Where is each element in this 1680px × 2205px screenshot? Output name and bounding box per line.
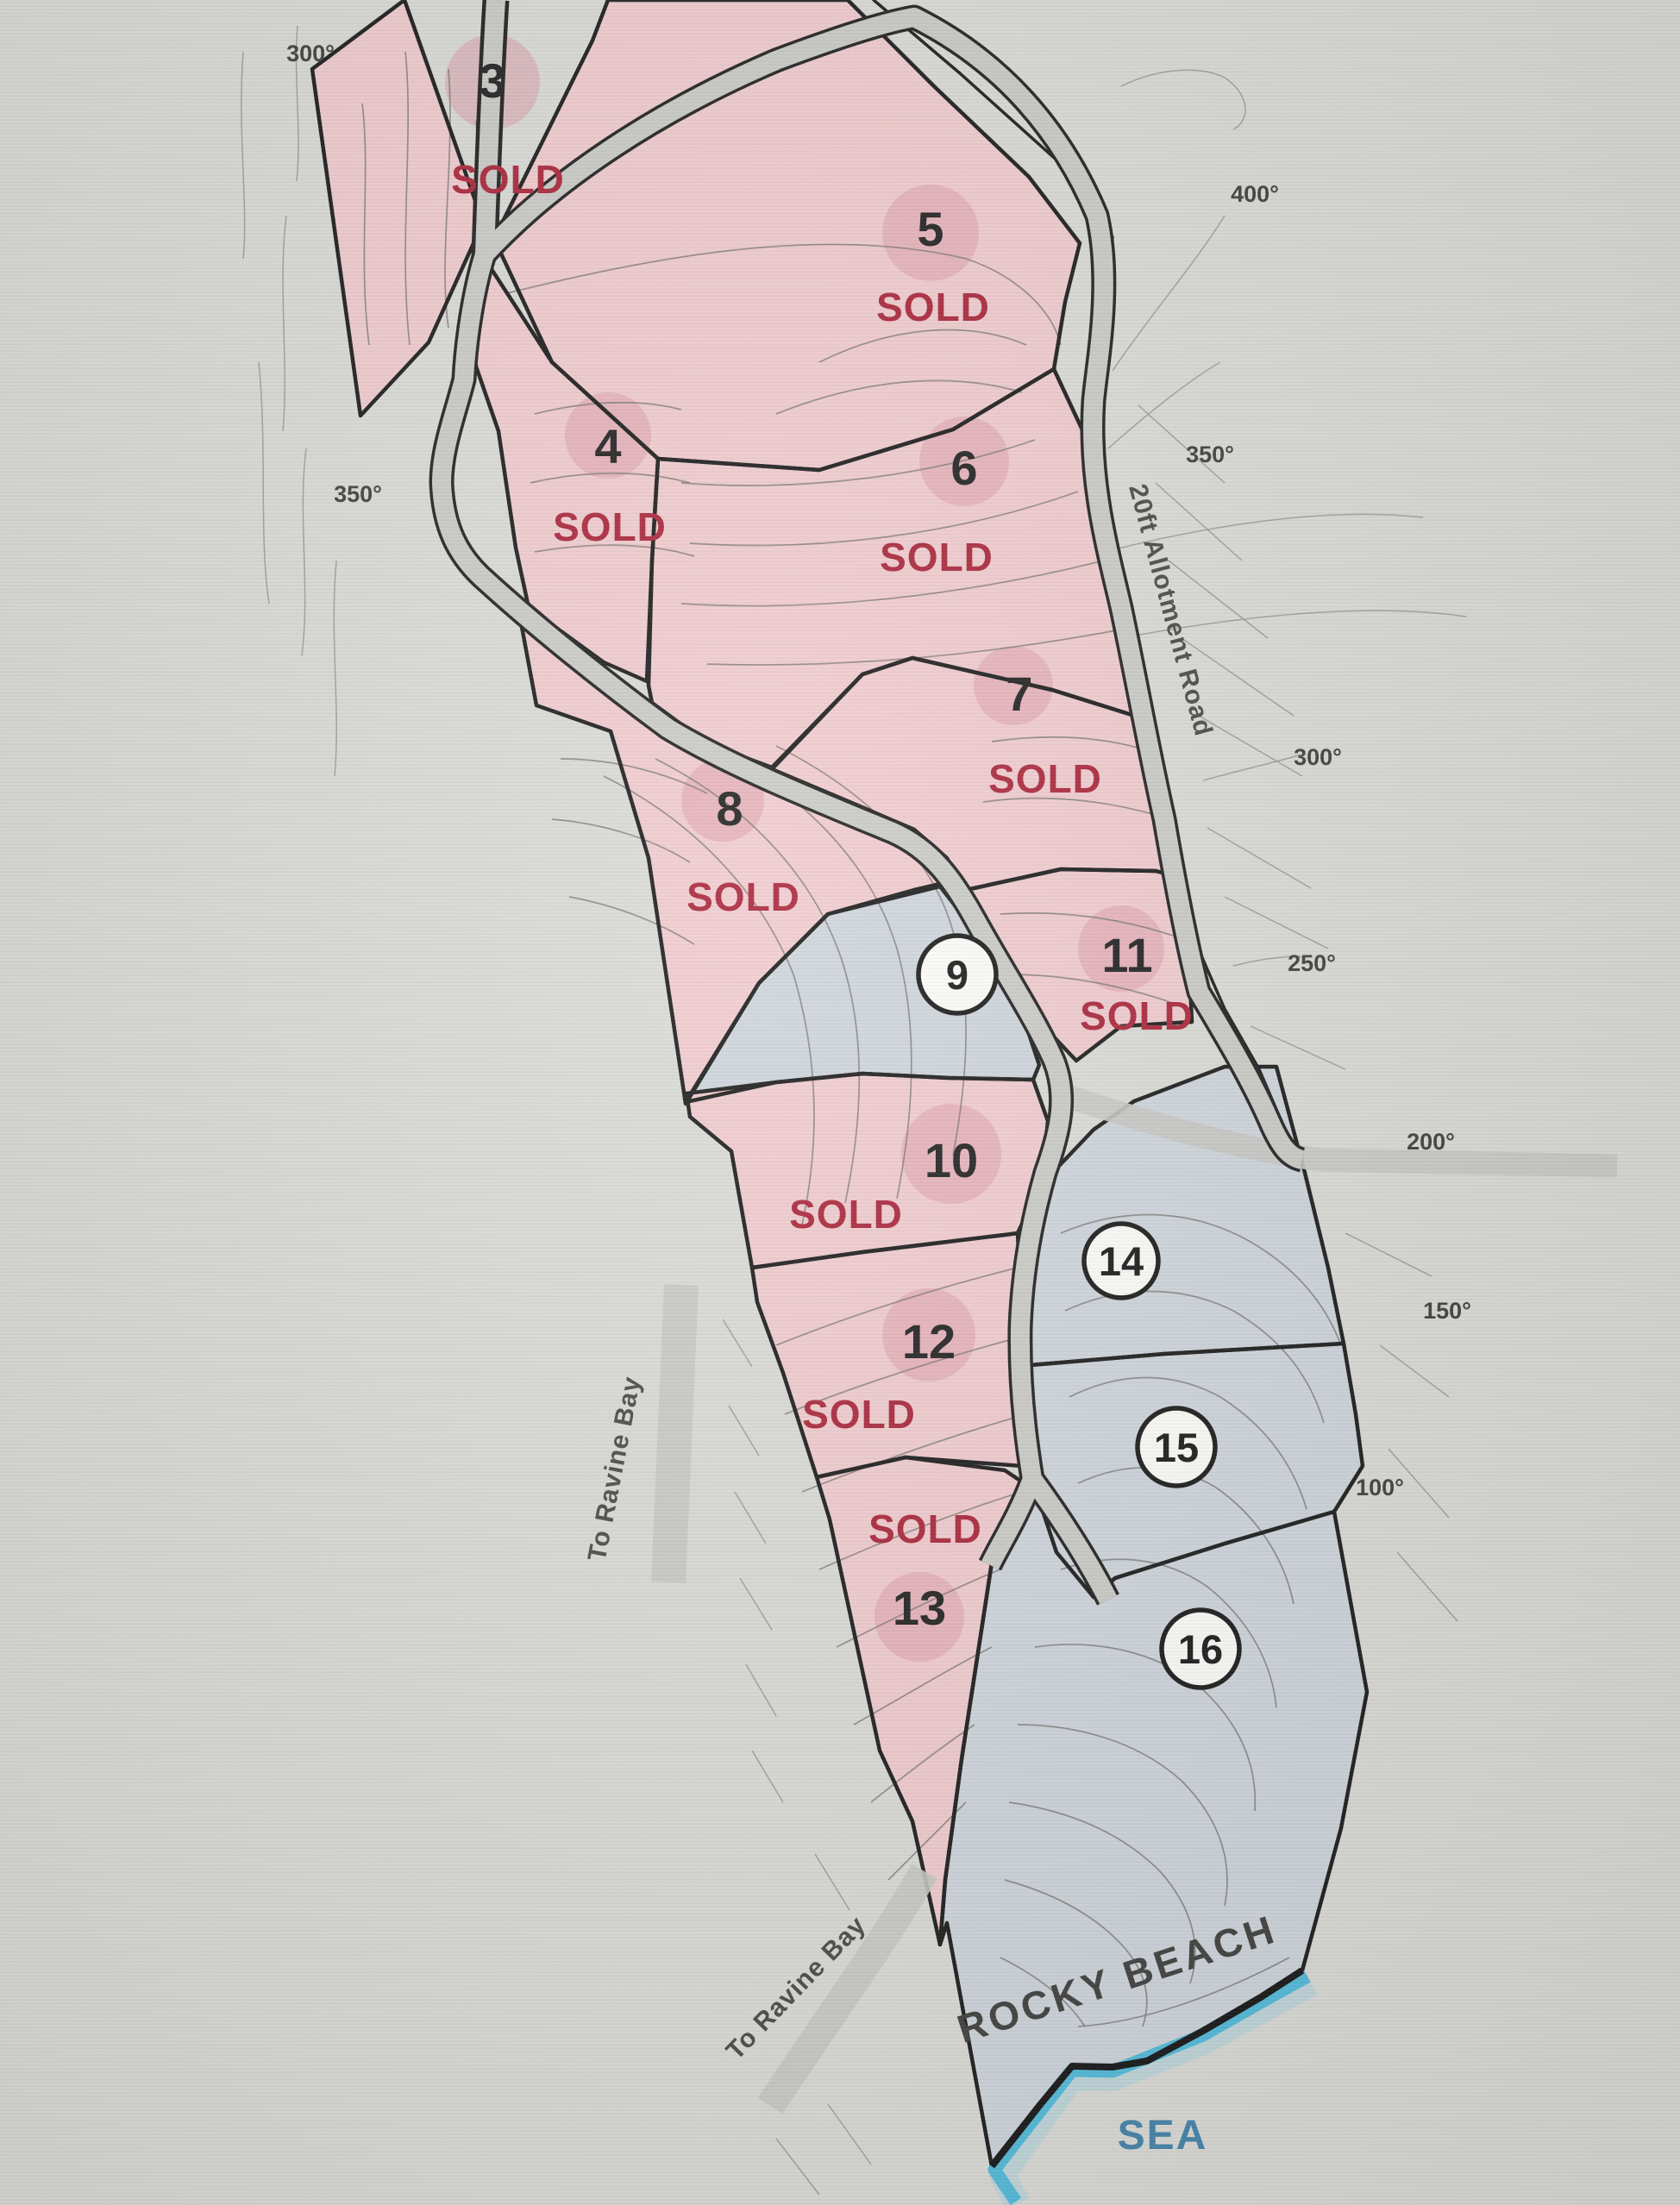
plot-12-number: 12: [902, 1314, 956, 1369]
elevation-400-right: 400°: [1231, 181, 1279, 207]
plot-6-number: 6: [950, 441, 977, 495]
plot-8-number: 8: [716, 781, 743, 836]
plot-16-number: 16: [1178, 1626, 1223, 1672]
elevation-250-right: 250°: [1288, 950, 1336, 976]
elevation-300-right: 300°: [1294, 744, 1342, 770]
plot-3-number: 3: [479, 53, 505, 108]
plot-4-sold-label: SOLD: [553, 504, 667, 549]
elevation-350-right: 350°: [1186, 442, 1234, 467]
plot-13-number: 13: [893, 1581, 946, 1635]
plot-8-sold-label: SOLD: [686, 874, 800, 919]
plot-7-number: 7: [1006, 667, 1032, 721]
plot-10-number: 10: [925, 1133, 978, 1187]
elevation-300-topleft: 300°: [286, 41, 335, 66]
plot-6-sold-label: SOLD: [880, 535, 994, 579]
elevation-150-right: 150°: [1423, 1298, 1471, 1324]
elevation-200-right: 200°: [1407, 1129, 1455, 1155]
sea-label: SEA: [1118, 2113, 1208, 2158]
plot-15-number: 15: [1154, 1425, 1199, 1470]
plot-9-number: 9: [946, 952, 969, 998]
plot-5-sold-label: SOLD: [876, 285, 990, 329]
plot-7-sold-label: SOLD: [988, 756, 1102, 801]
road-to-ravine-bay-left: [668, 1285, 681, 1582]
plot-10-sold-label: SOLD: [789, 1192, 903, 1237]
plot-12-sold-label: SOLD: [802, 1392, 916, 1437]
allotment-map: 9 14 15 16 3 4 5 6 7 8 10 11 12 13 SOLD …: [0, 0, 1680, 2205]
plot-5-number: 5: [917, 202, 943, 256]
to-ravine-bay-left-label: To Ravine Bay: [583, 1374, 647, 1563]
plot-map-screenshot: 9 14 15 16 3 4 5 6 7 8 10 11 12 13 SOLD …: [0, 0, 1680, 2205]
plot-13-sold-label: SOLD: [868, 1507, 982, 1551]
plot-4-number: 4: [594, 419, 621, 473]
elevation-350-left: 350°: [334, 481, 382, 507]
plot-3-sold-label: SOLD: [451, 157, 565, 202]
plot-11-number: 11: [1101, 928, 1152, 982]
plot-14-number: 14: [1099, 1238, 1144, 1284]
plot-11-sold-label: SOLD: [1080, 993, 1194, 1038]
plot-14-region: [1028, 1067, 1344, 1365]
elevation-100-right: 100°: [1356, 1475, 1404, 1500]
